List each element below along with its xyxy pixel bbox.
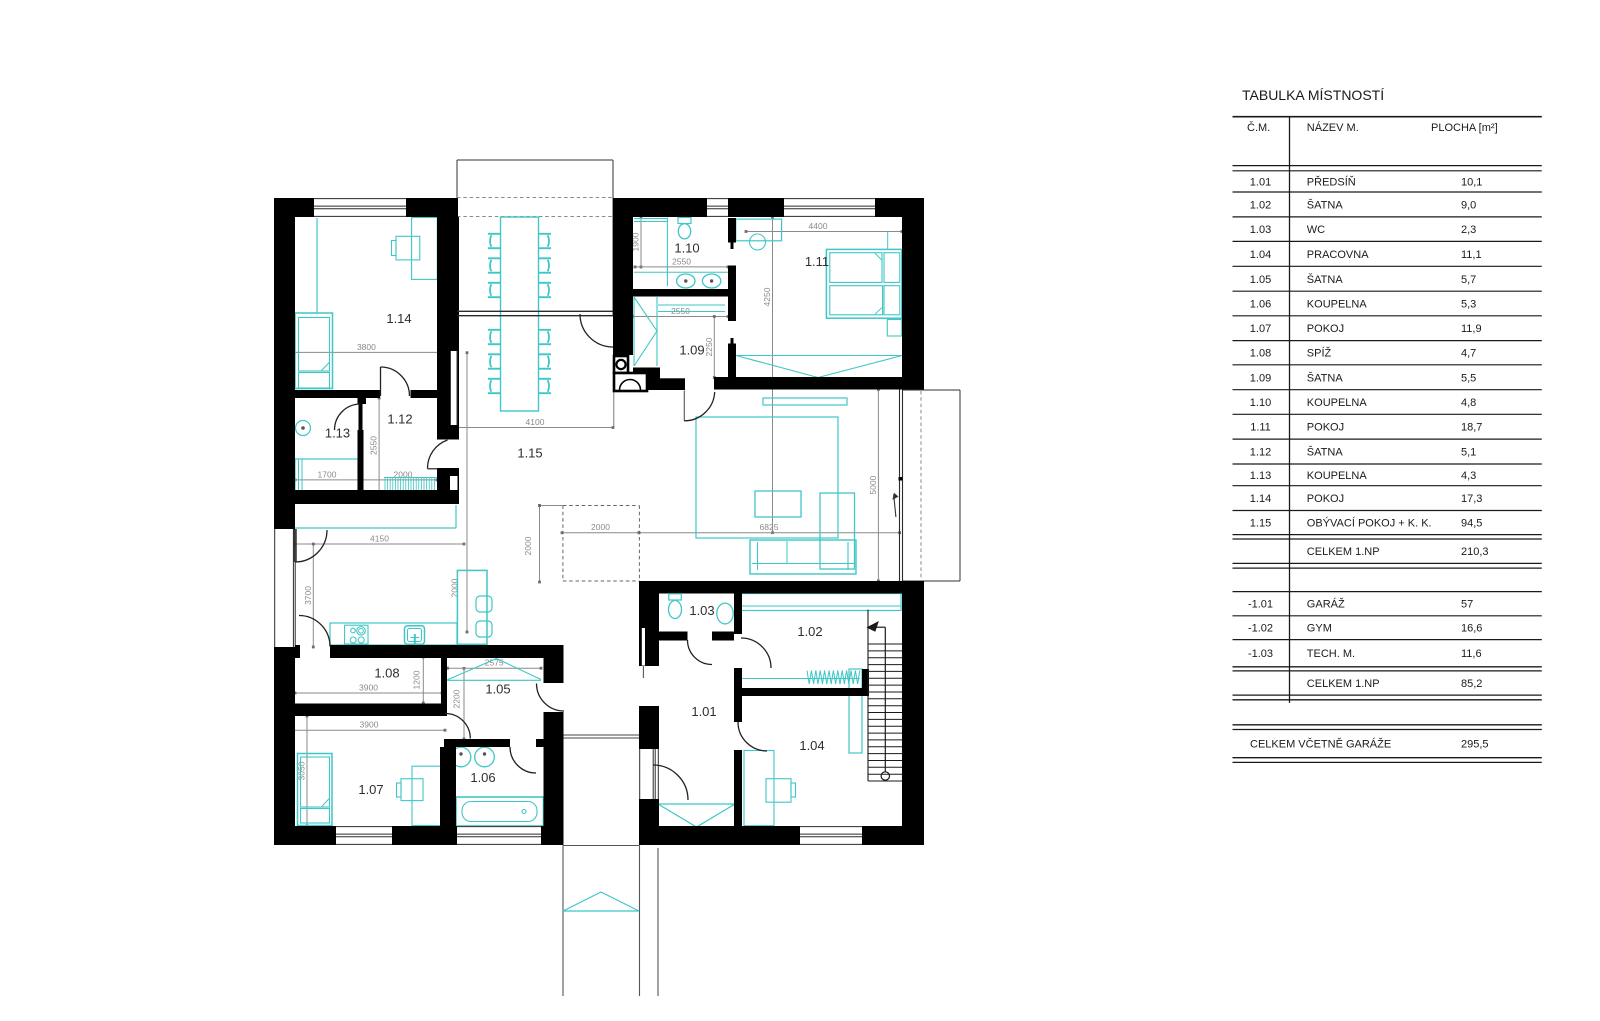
svg-text:KOUPELNA: KOUPELNA: [1307, 299, 1368, 311]
svg-text:1.10: 1.10: [1250, 397, 1271, 409]
svg-text:4,7: 4,7: [1461, 348, 1476, 360]
svg-text:PRACOVNA: PRACOVNA: [1307, 249, 1369, 261]
svg-text:ŠATNA: ŠATNA: [1307, 446, 1344, 459]
svg-text:1200: 1200: [412, 670, 422, 689]
svg-text:2,3: 2,3: [1461, 224, 1476, 236]
svg-text:1.14: 1.14: [1250, 493, 1271, 505]
svg-text:1.09: 1.09: [1250, 372, 1271, 384]
svg-text:2000: 2000: [591, 522, 610, 532]
svg-text:WC: WC: [1307, 224, 1325, 236]
svg-text:1.07: 1.07: [358, 782, 383, 797]
svg-text:Č.M.: Č.M.: [1247, 121, 1270, 134]
svg-text:1.09: 1.09: [679, 343, 704, 358]
svg-text:3700: 3700: [303, 586, 313, 605]
svg-text:18,7: 18,7: [1461, 422, 1482, 434]
svg-text:KOUPELNA: KOUPELNA: [1307, 470, 1368, 482]
svg-text:85,2: 85,2: [1461, 678, 1482, 690]
svg-text:94,5: 94,5: [1461, 518, 1482, 530]
svg-text:1.11: 1.11: [1250, 422, 1271, 434]
svg-text:2000: 2000: [523, 536, 533, 555]
svg-text:KOUPELNA: KOUPELNA: [1307, 397, 1368, 409]
svg-text:1.06: 1.06: [470, 770, 495, 785]
svg-text:2550: 2550: [672, 256, 691, 266]
svg-text:1.02: 1.02: [797, 624, 822, 639]
svg-text:SPÍŽ: SPÍŽ: [1307, 347, 1332, 360]
svg-text:5,7: 5,7: [1461, 274, 1476, 286]
svg-text:3800: 3800: [357, 342, 376, 352]
svg-text:-1.02: -1.02: [1248, 623, 1273, 635]
svg-text:1.04: 1.04: [1250, 249, 1271, 261]
svg-text:OBÝVACÍ POKOJ + K. K.: OBÝVACÍ POKOJ + K. K.: [1307, 517, 1432, 530]
svg-text:POKOJ: POKOJ: [1307, 422, 1344, 434]
svg-text:4400: 4400: [809, 221, 828, 231]
svg-text:1.10: 1.10: [674, 241, 699, 256]
svg-text:-1.03: -1.03: [1248, 648, 1273, 660]
svg-text:3900: 3900: [359, 683, 378, 693]
svg-text:6825: 6825: [760, 522, 779, 532]
svg-text:1.06: 1.06: [1250, 299, 1271, 311]
svg-text:5000: 5000: [868, 475, 878, 494]
svg-text:GARÁŽ: GARÁŽ: [1307, 598, 1345, 611]
svg-text:11,1: 11,1: [1461, 249, 1482, 261]
svg-text:1.11: 1.11: [805, 254, 829, 269]
svg-text:5,5: 5,5: [1461, 372, 1476, 384]
svg-text:17,3: 17,3: [1461, 493, 1482, 505]
svg-text:TECH. M.: TECH. M.: [1307, 648, 1355, 660]
svg-text:4150: 4150: [370, 534, 389, 544]
svg-text:4,8: 4,8: [1461, 397, 1476, 409]
svg-text:1.07: 1.07: [1250, 323, 1271, 335]
svg-text:1.03: 1.03: [1250, 224, 1271, 236]
svg-text:2550: 2550: [369, 436, 379, 455]
svg-text:5,1: 5,1: [1461, 447, 1476, 459]
svg-text:1.02: 1.02: [1250, 200, 1271, 212]
svg-text:9,0: 9,0: [1461, 200, 1476, 212]
svg-text:1.15: 1.15: [1250, 518, 1271, 530]
svg-text:POKOJ: POKOJ: [1307, 323, 1344, 335]
svg-text:4100: 4100: [526, 417, 545, 427]
svg-text:1.05: 1.05: [485, 682, 510, 697]
svg-text:10,1: 10,1: [1461, 177, 1482, 189]
svg-text:ŠATNA: ŠATNA: [1307, 199, 1344, 212]
svg-text:ŠATNA: ŠATNA: [1307, 371, 1344, 384]
svg-text:3900: 3900: [360, 720, 379, 730]
svg-text:1.01: 1.01: [1250, 177, 1271, 189]
svg-text:PŘEDSÍŇ: PŘEDSÍŇ: [1307, 176, 1356, 189]
svg-text:CELKEM 1.NP: CELKEM 1.NP: [1307, 546, 1380, 558]
svg-text:CELKEM 1.NP: CELKEM 1.NP: [1307, 678, 1380, 690]
svg-text:1.04: 1.04: [799, 738, 824, 753]
svg-text:1.08: 1.08: [374, 666, 399, 681]
svg-text:-1.01: -1.01: [1248, 599, 1273, 611]
svg-text:1.08: 1.08: [1250, 348, 1271, 360]
svg-text:11,6: 11,6: [1461, 648, 1482, 660]
svg-text:4,3: 4,3: [1461, 470, 1476, 482]
svg-text:POKOJ: POKOJ: [1307, 493, 1344, 505]
svg-text:CELKEM VČETNĚ GARÁŽE: CELKEM VČETNĚ GARÁŽE: [1250, 738, 1391, 751]
svg-text:1.12: 1.12: [1250, 447, 1271, 459]
svg-text:GYM: GYM: [1307, 623, 1332, 635]
svg-text:1.14: 1.14: [386, 311, 411, 326]
svg-text:1.13: 1.13: [325, 426, 350, 441]
svg-text:295,5: 295,5: [1461, 739, 1489, 751]
svg-text:ŠATNA: ŠATNA: [1307, 273, 1344, 286]
svg-text:TABULKA MÍSTNOSTÍ: TABULKA MÍSTNOSTÍ: [1242, 87, 1384, 103]
svg-text:57: 57: [1461, 599, 1473, 611]
svg-text:16,6: 16,6: [1461, 623, 1482, 635]
svg-text:1.01: 1.01: [691, 704, 716, 719]
svg-text:11,9: 11,9: [1461, 323, 1482, 335]
svg-text:1700: 1700: [318, 469, 337, 479]
svg-text:2250: 2250: [704, 337, 714, 356]
svg-text:5,3: 5,3: [1461, 299, 1476, 311]
svg-text:1.03: 1.03: [689, 603, 714, 618]
svg-text:1.13: 1.13: [1250, 470, 1271, 482]
svg-text:1.15: 1.15: [517, 446, 542, 461]
svg-text:NÁZEV M.: NÁZEV M.: [1307, 121, 1359, 134]
svg-text:2200: 2200: [452, 689, 462, 708]
svg-text:1.05: 1.05: [1250, 274, 1271, 286]
svg-text:PLOCHA [m²]: PLOCHA [m²]: [1431, 122, 1498, 134]
svg-text:210,3: 210,3: [1461, 546, 1489, 558]
svg-text:4250: 4250: [762, 287, 772, 306]
svg-text:1.12: 1.12: [387, 412, 412, 427]
